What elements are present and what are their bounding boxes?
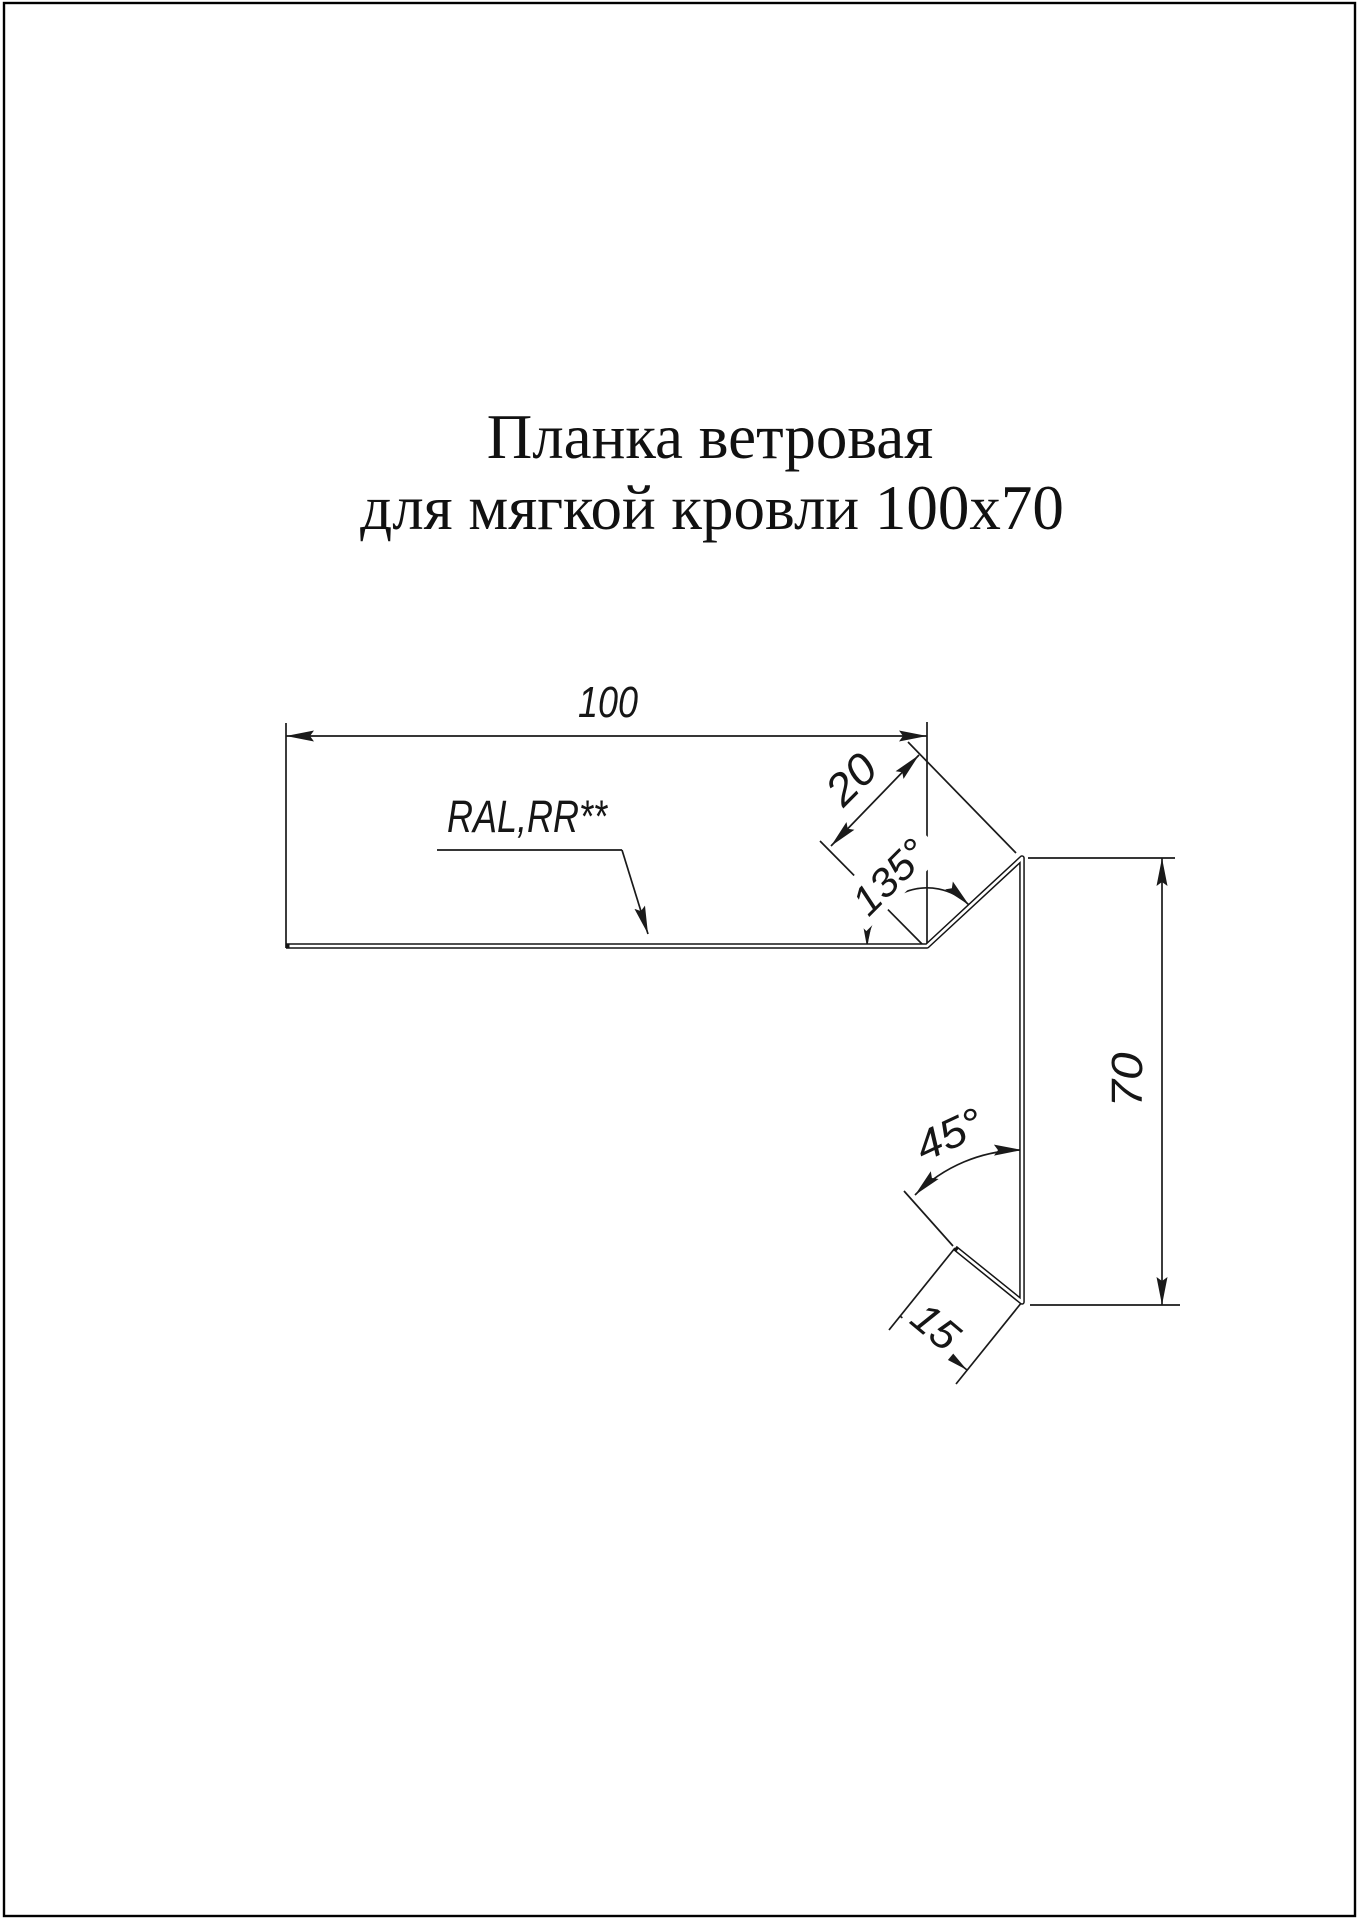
extension-lines: [286, 722, 1180, 1384]
technical-drawing: Планка ветровая для мягкой кровли 100x70…: [0, 0, 1359, 1920]
leader-arrow-line: [622, 850, 648, 934]
extension-line-hem-continuation: [904, 1191, 953, 1246]
dimension-70-label: 70: [1103, 1052, 1152, 1108]
dimension-labels: 100 20 135° 70 45° 15 RAL,RR**: [447, 678, 1152, 1364]
dimension-20-label: 20: [815, 744, 888, 817]
page-title-line-2: для мягкой кровли 100x70: [360, 473, 1064, 543]
page-title-line-1: Планка ветровая: [487, 402, 933, 472]
dimension-lines: [286, 736, 1162, 1370]
profile-outline-outer: [286, 858, 1022, 1302]
extension-line-hem-lower: [956, 1302, 1022, 1384]
coating-label: RAL,RR**: [447, 791, 608, 842]
profile-outline-core: [290, 858, 1023, 1302]
coating-leader: [437, 850, 648, 934]
page-border: [4, 3, 1355, 1916]
dimension-15-label: 15: [902, 1293, 969, 1360]
dimension-100-label: 100: [578, 678, 638, 727]
drawing-page: Планка ветровая для мягкой кровли 100x70…: [0, 0, 1359, 1920]
